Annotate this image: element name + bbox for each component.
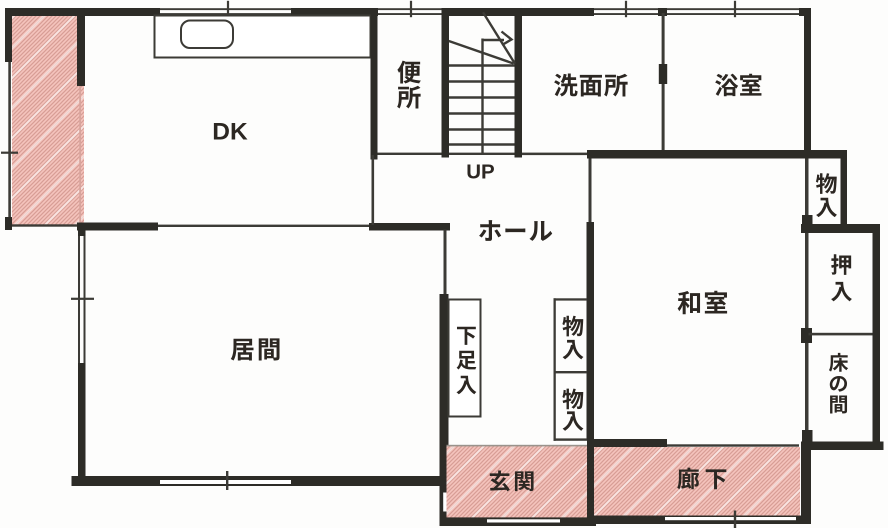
- svg-text:UP: UP: [466, 161, 494, 184]
- svg-text:DK: DK: [212, 119, 248, 146]
